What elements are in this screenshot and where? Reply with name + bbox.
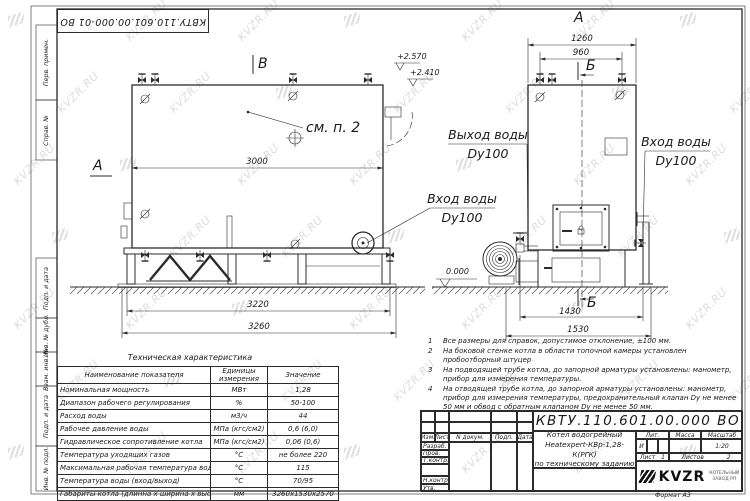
logo-cell: KVZR КОТЕЛЬНЫЙЗАВОД РП <box>636 461 743 492</box>
sheets-cell: Листов2 <box>669 453 743 461</box>
frame-label-inv-podl: Инв. № подл. <box>36 446 57 491</box>
table-row: Номинальная мощностьМВт1,28 <box>58 384 339 397</box>
note-4: 4На отводящей трубе котла, до запорной а… <box>428 385 740 412</box>
tech-table-title: Техническая характеристика <box>57 353 323 366</box>
col-value-header: Значение <box>268 367 339 384</box>
mass-header: Масса <box>669 431 701 439</box>
frame-label-sprav-no: Справ. № <box>36 100 57 160</box>
format-label: Формат А3 <box>655 492 691 499</box>
dim-1430: 1430 <box>559 307 581 317</box>
row-utv: Утв. <box>421 484 449 492</box>
lit-header: Лит. <box>636 431 669 439</box>
dim-3220: 3220 <box>247 300 269 310</box>
row-razrab: Разраб. <box>421 442 449 450</box>
section-marker-b2: Б <box>587 295 597 311</box>
notes-list: 1Все размеры для справок, допустимое отк… <box>428 337 740 413</box>
col-list: Лист <box>435 433 449 442</box>
row-tkontr: Т.контр. <box>421 457 449 464</box>
row-nkontr: Н.контр. <box>421 476 449 484</box>
table-row: Температура уходящих газов°Сне более 220 <box>58 449 339 462</box>
table-row: Габариты котла (длинна х ширина х высота… <box>58 488 339 501</box>
frame-label-vzam-inv: Взам. инв. № <box>36 352 57 386</box>
note-3: 3На подводящей трубе котла, до запорной … <box>428 366 740 384</box>
left-view-dimensions: 3000 3220 3260 В А см. п. 2 +2.570 +2.41… <box>90 52 440 338</box>
outlet-label: Выход воды <box>448 127 528 142</box>
table-row: Рабочее давление водыМПа (кгс/см2)0,6 (6… <box>58 423 339 436</box>
kvzr-logo-icon <box>638 470 656 483</box>
lit-value: И <box>636 439 647 453</box>
col-ndoc: N докум. <box>449 433 491 442</box>
elevation-2410: +2.410 <box>410 68 440 77</box>
inlet-side-label: Вход воды <box>427 191 497 206</box>
col-name-header: Наименование показателя <box>58 367 211 384</box>
frame-label-podp-data-1: Подп. и дата <box>36 258 57 318</box>
dim-960: 960 <box>573 48 589 58</box>
col-podp: Подп. <box>491 433 517 442</box>
frame-label-perv-primen: Перв. примен. <box>36 25 57 100</box>
tech-characteristics: Техническая характеристика Наименование … <box>57 353 323 501</box>
dim-1260: 1260 <box>571 34 593 44</box>
scale-value: 1:20 <box>701 439 743 453</box>
tech-table: Наименование показателя Единицыизмерения… <box>57 366 339 501</box>
inlet-front-dn-label: Dy100 <box>656 153 697 168</box>
table-row: Расход водым3/ч44 <box>58 410 339 423</box>
corner-stamp: КВТУ.110.601.00.000-01 ВО <box>57 9 209 33</box>
col-units-header: Единицыизмерения <box>211 367 268 384</box>
kvzr-logo-subtitle: КОТЕЛЬНЫЙЗАВОД РП <box>709 471 739 482</box>
dim-1530: 1530 <box>567 325 589 335</box>
section-marker-b-top: В <box>258 56 268 72</box>
drawing-designation: КВТУ.110.601.00.000 ВО <box>533 411 743 431</box>
kvzr-logo-text: KVZR <box>659 469 706 485</box>
note-2: 2На боковой стенке котла в области топоч… <box>428 347 740 365</box>
col-izm: Изм. <box>421 433 435 442</box>
dim-3260: 3260 <box>248 322 270 332</box>
col-data: Дата <box>517 433 533 442</box>
pipe-labels: Выход воды Dy100 Вход воды Dy100 Вход во… <box>367 127 711 243</box>
sheet-cell: Лист1 <box>636 453 669 461</box>
mass-value <box>669 439 701 453</box>
table-row: Максимальная рабочая температура воды°С1… <box>58 462 339 475</box>
engineering-drawing-sheet: { "watermark": { "text": "KVZR.RU" }, "c… <box>0 0 750 500</box>
section-marker-a-left: А <box>92 158 103 174</box>
table-row: Температура воды (вход/выход)°С70/95 <box>58 475 339 488</box>
elevation-2570: +2.570 <box>397 52 427 61</box>
table-row: Диапазон рабочего регулирования%50-100 <box>58 397 339 410</box>
table-row: Гидравлическое сопротивление котлаМПа (к… <box>58 436 339 449</box>
inlet-front-label: Вход воды <box>641 134 711 149</box>
section-marker-b1: Б <box>586 58 596 74</box>
elevation-0000: 0.000 <box>446 267 469 276</box>
inlet-side-dn-label: Dy100 <box>442 210 483 225</box>
outlet-dn-label: Dy100 <box>468 146 509 161</box>
tech-table-header: Наименование показателя Единицыизмерения… <box>58 367 339 384</box>
left-view-side <box>70 74 425 294</box>
row-prov: Пров. <box>421 450 449 457</box>
dim-3000: 3000 <box>246 157 268 167</box>
note-1: 1Все размеры для справок, допустимое отк… <box>428 337 740 346</box>
see-item-2-label: см. п. 2 <box>306 120 360 136</box>
row-blank <box>421 464 449 476</box>
document-name: Котел водогрейный Heatexpert-КВр-1,28-К(… <box>533 431 636 468</box>
scale-header: Масштаб <box>701 431 743 439</box>
view-a-label: А <box>573 10 584 26</box>
frame-label-podp-data-2: Подп. и дата <box>36 386 57 446</box>
title-block: Изм. Лист N докум. Подп. Дата Разраб. Пр… <box>420 410 742 491</box>
corner-stamp-text: КВТУ.110.601.00.000-01 ВО <box>60 16 206 27</box>
